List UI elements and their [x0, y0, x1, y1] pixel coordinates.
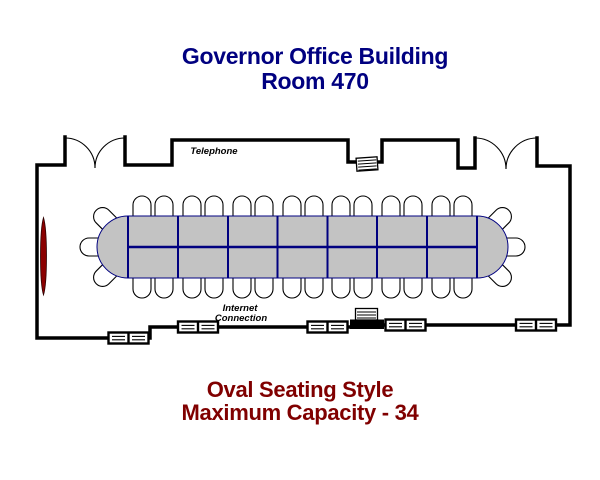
outlet-box [109, 333, 149, 344]
chair [382, 196, 400, 217]
door-swing-left [95, 138, 125, 168]
chair [255, 196, 273, 217]
chair [432, 277, 450, 298]
chair [233, 277, 251, 298]
conference-table [97, 216, 508, 278]
outlet-box [386, 320, 426, 331]
wall-screen [41, 218, 47, 296]
chair [155, 277, 173, 298]
internet-label-line2: Connection [215, 313, 267, 324]
chair [354, 277, 372, 298]
chair [133, 277, 151, 298]
telephone-jack [356, 157, 378, 171]
chair [183, 196, 201, 217]
chair [382, 277, 400, 298]
podium-base [350, 320, 384, 330]
chair [332, 277, 350, 298]
podium-equipment [350, 309, 384, 330]
chair [183, 277, 201, 298]
seating-style-label: Oval Seating Style [0, 378, 600, 401]
chair [454, 277, 472, 298]
chair [205, 196, 223, 217]
chair [305, 196, 323, 217]
chair [283, 277, 301, 298]
outlet-boxes [109, 320, 557, 344]
floor-plan-page: Governor Office Building Room 470 [0, 0, 600, 480]
telephone-label: Telephone [190, 146, 238, 157]
chair [233, 196, 251, 217]
chair [205, 277, 223, 298]
outlet-box [308, 322, 348, 333]
chair [155, 196, 173, 217]
podium-jack [356, 309, 378, 321]
caption: Oval Seating Style Maximum Capacity - 34 [0, 378, 600, 424]
wall-top-middle [125, 137, 475, 168]
chair [255, 277, 273, 298]
chair [454, 196, 472, 217]
chair [404, 196, 422, 217]
chair [305, 277, 323, 298]
chair [354, 196, 372, 217]
capacity-label: Maximum Capacity - 34 [0, 401, 600, 424]
chair [332, 196, 350, 217]
door-swing-left [65, 138, 95, 168]
outlet-box [516, 320, 556, 331]
chair [404, 277, 422, 298]
chair [432, 196, 450, 217]
door-swing-right [475, 138, 506, 169]
outlet-box [178, 322, 218, 333]
door-swing-right [506, 138, 537, 169]
chair [133, 196, 151, 217]
chair [283, 196, 301, 217]
